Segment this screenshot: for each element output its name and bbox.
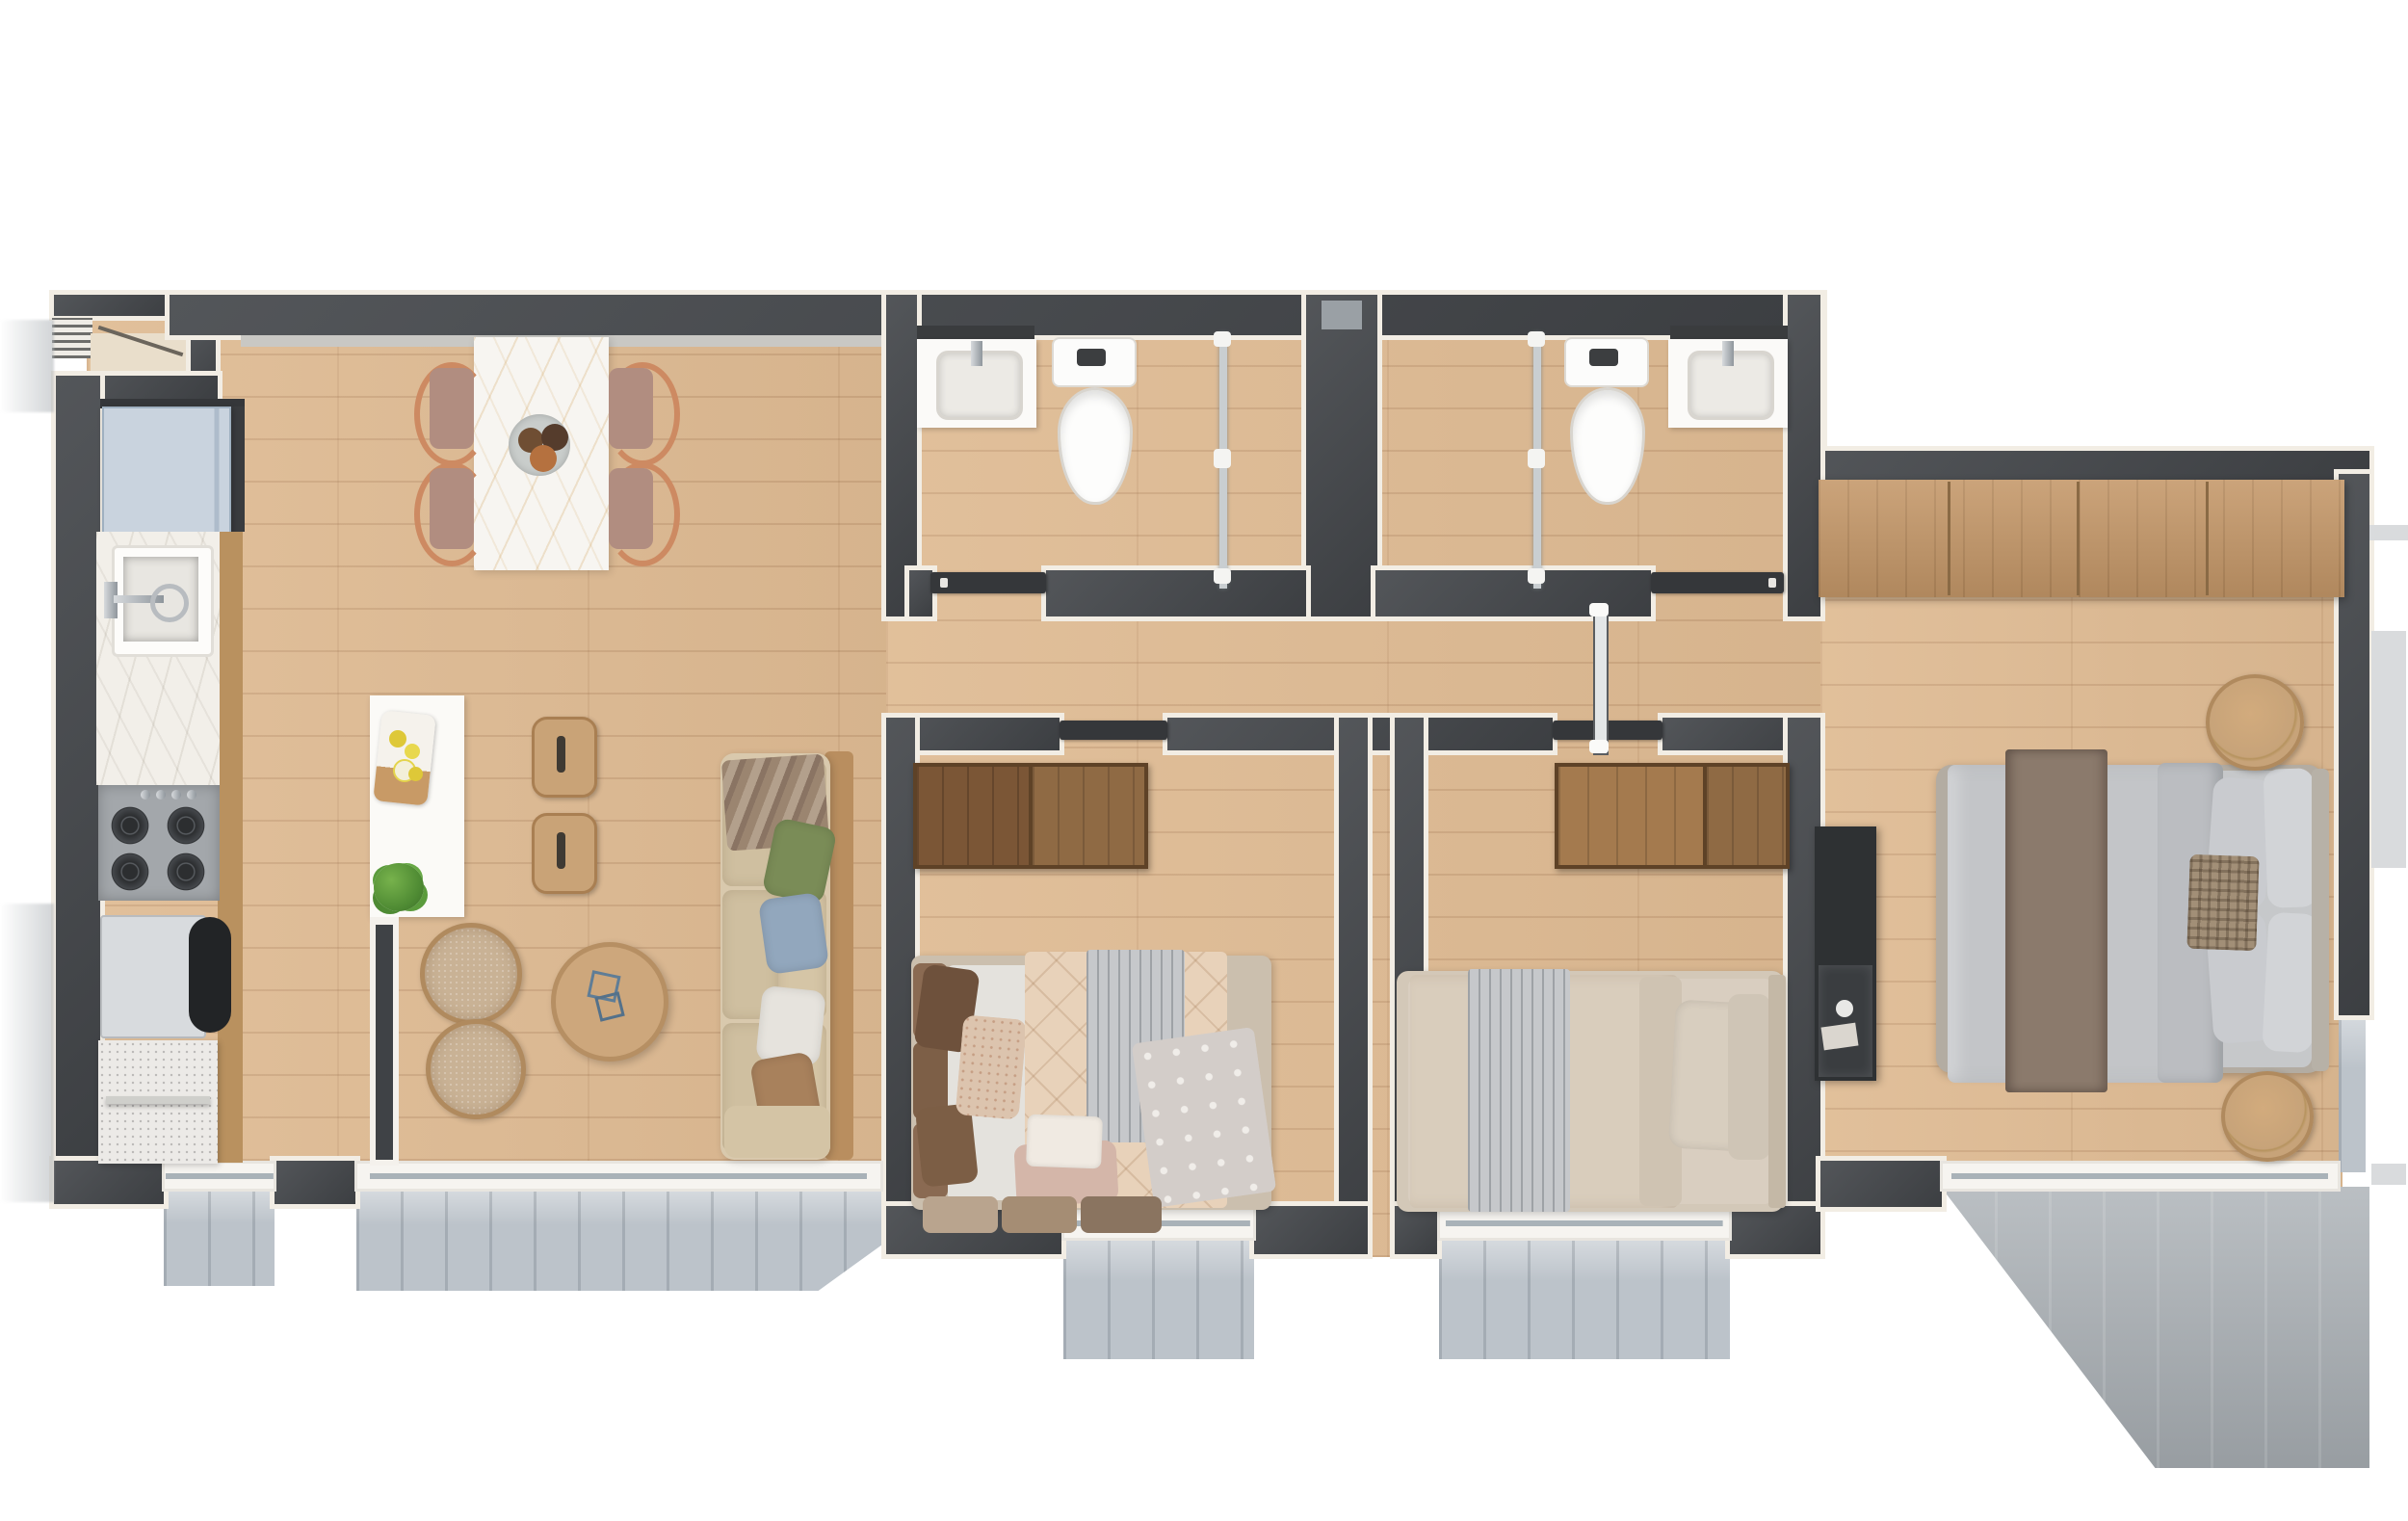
entry-hatch	[52, 318, 92, 358]
bath-right-wall	[1788, 295, 1820, 616]
washing-machine-door	[189, 917, 231, 1033]
exterior-fragment-left-1	[0, 320, 54, 412]
bed2-pillow-brown	[915, 1103, 979, 1188]
top-wall-right	[1793, 451, 2369, 480]
exterior-fragment-left-2	[0, 904, 54, 1202]
counter-wood-edge	[218, 532, 243, 1163]
kitchen-faucet-ring	[150, 584, 189, 622]
bedroom2-door	[1060, 721, 1167, 740]
bed2-right-wall	[1339, 718, 1368, 1254]
exterior-notch-right-2	[2371, 631, 2406, 868]
master-balcony-door-sill	[1940, 1161, 2341, 1192]
shower2-hinge-mid	[1528, 449, 1545, 468]
bed2-bench-cushion-2	[1002, 1196, 1077, 1233]
cutting-board	[373, 710, 436, 805]
dining-chair-seat-2	[430, 468, 474, 549]
window-sill-1	[162, 1161, 276, 1192]
master-pillow-checkered	[2186, 854, 2259, 951]
bath1-faucet	[971, 341, 982, 366]
master-throw	[2005, 749, 2107, 1092]
burner-3	[110, 852, 150, 892]
tv-decor-book	[1821, 1023, 1859, 1051]
bath2-door	[1651, 572, 1784, 593]
lemon-3	[408, 767, 423, 781]
toilet1-button	[1077, 349, 1106, 366]
exterior-notch-right-1	[2369, 525, 2408, 540]
refrigerator	[102, 406, 231, 536]
dining-chair-seat-4	[609, 468, 653, 549]
toilet2-button	[1589, 349, 1618, 366]
exterior-notch-right-3	[2371, 1164, 2406, 1185]
top-wall-left	[54, 295, 171, 316]
cooktop-knob-4	[187, 790, 196, 800]
bed3-window-glass	[1439, 1239, 1730, 1359]
lemon-2	[405, 744, 420, 759]
shower1-hinge-bot	[1214, 568, 1231, 584]
bed3-headboard	[1768, 975, 1786, 1208]
master-wardrobe	[1819, 480, 2344, 597]
bed3-pillow-side	[1728, 994, 1770, 1160]
sofa-chaise-cushion	[724, 1106, 830, 1158]
shower1-hinge-mid	[1214, 449, 1231, 468]
window-sill-2	[354, 1161, 883, 1192]
shower2-hinge-bot	[1528, 568, 1545, 584]
bath2-vanity-shelf	[1670, 326, 1788, 339]
bath1-door-handle	[940, 578, 948, 588]
pouf-1	[420, 923, 522, 1025]
bed3-bottom-wall-left	[1395, 1206, 1437, 1254]
burner-1	[110, 805, 150, 846]
dining-chair-seat-3	[609, 368, 653, 449]
bath1-bottom-wall	[1046, 570, 1306, 616]
burner-4	[166, 852, 206, 892]
bath2-faucet	[1722, 341, 1734, 366]
master-door-hinge-bot	[1589, 740, 1609, 753]
balcony-floor	[1941, 1187, 2369, 1468]
master-wardrobe-seam-1	[1948, 482, 1950, 595]
master-pillow-4	[2262, 912, 2318, 1054]
master-door	[1593, 605, 1609, 755]
window-glass-2	[356, 1190, 881, 1291]
dining-chair-seat-1	[430, 368, 474, 449]
bedroom2-wardrobe-door-right	[1033, 767, 1144, 865]
tv-unit-marble-top	[1819, 965, 1872, 1077]
master-pillow-3	[2264, 768, 2318, 908]
decor-ball-3	[530, 445, 557, 472]
bed2-pillow-dotted	[955, 1014, 1028, 1119]
half-wall-core	[376, 925, 393, 1160]
master-door-hinge-top	[1589, 603, 1609, 616]
shaft-inset	[1322, 301, 1362, 329]
potted-plant	[374, 863, 424, 911]
cooktop-knob-1	[141, 790, 150, 800]
floor-plan-canvas	[0, 0, 2408, 1521]
bath-mid-wall	[1306, 295, 1377, 616]
bedroom2-wardrobe-door-left	[917, 767, 1029, 865]
master-wardrobe-seam-2	[2077, 482, 2080, 595]
left-wall	[56, 376, 100, 1204]
bed2-bench-cushion-1	[923, 1196, 998, 1233]
bath2-bottom-wall	[1375, 570, 1651, 616]
bar-stool-2-slot	[557, 832, 565, 869]
living-bottom-pillar	[275, 1161, 355, 1204]
bath1-vanity-shelf	[917, 326, 1034, 339]
tv-decor-speaker	[1836, 1000, 1853, 1017]
bath-left-wall	[886, 295, 917, 616]
bed2-bottom-wall-right	[1254, 1206, 1368, 1254]
master-wardrobe-seam-3	[2206, 482, 2209, 595]
bar-stool-1-slot	[557, 736, 565, 773]
bed2-pillow-bear	[1026, 1115, 1103, 1169]
bed3-runner	[1468, 969, 1570, 1212]
cooktop-knob-2	[156, 790, 166, 800]
bed2-window-glass	[1063, 1239, 1254, 1359]
bedroom3-wardrobe-door-left	[1558, 767, 1703, 865]
bed2-blanket-polka	[1132, 1027, 1277, 1208]
master-side-table-1	[2206, 674, 2304, 771]
bath1-bottom-wall-left	[909, 570, 932, 616]
bed2-bench-cushion-3	[1081, 1196, 1162, 1233]
sofa-pillow-blue	[758, 892, 829, 975]
burner-2	[166, 805, 206, 846]
bedroom3-wardrobe-door-right	[1707, 767, 1786, 865]
open-shelf-divider	[106, 1096, 210, 1104]
window-glass-1	[164, 1190, 275, 1286]
cooktop-knob-3	[171, 790, 181, 800]
master-right-glass	[2339, 1013, 2366, 1172]
living-bottom-wall-left	[54, 1161, 164, 1204]
pouf-2	[426, 1019, 526, 1119]
bath2-door-handle	[1768, 578, 1776, 588]
shower2-hinge-top	[1528, 331, 1545, 347]
shower1-hinge-top	[1214, 331, 1231, 347]
corridor-bottom-wall	[1820, 1161, 1942, 1207]
master-headboard	[2312, 769, 2329, 1071]
lemon-1	[389, 730, 406, 747]
master-side-table-2	[2221, 1071, 2314, 1162]
bed3-bottom-wall-right	[1730, 1206, 1820, 1254]
bath1-door	[930, 572, 1046, 593]
